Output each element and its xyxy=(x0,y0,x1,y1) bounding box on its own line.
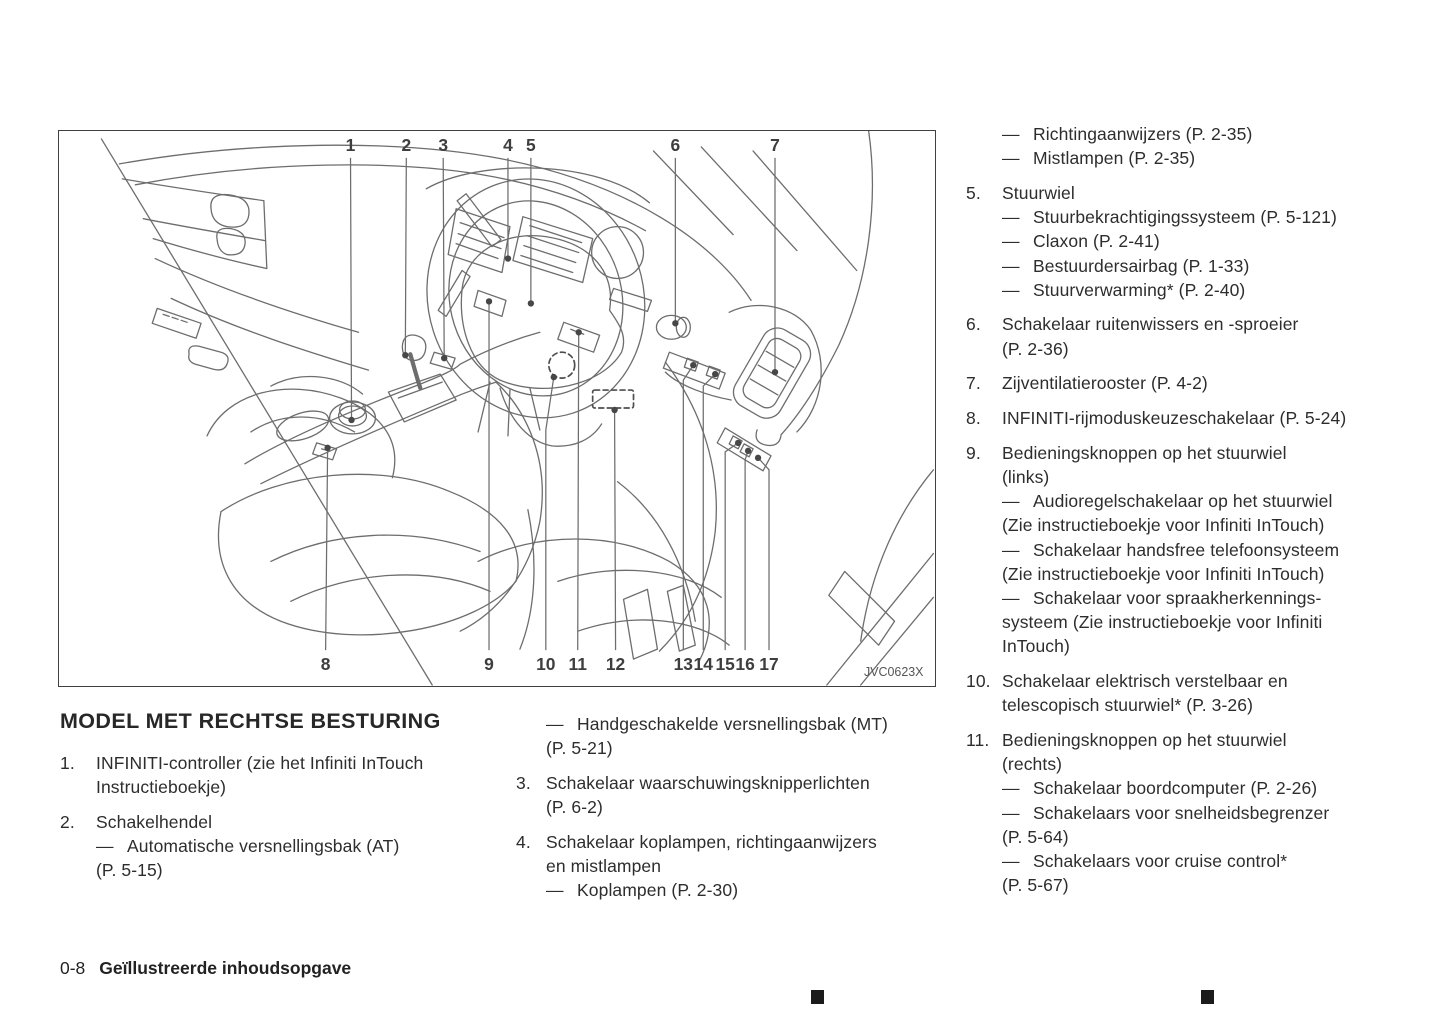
column-right: —Richtingaanwijzers (P. 2-35)—Mistlampen… xyxy=(966,122,1431,908)
dash-marker: — xyxy=(1002,254,1033,278)
diagram-callouts: 1234567891011121314151617 xyxy=(321,135,780,674)
callout-dot-9 xyxy=(486,298,492,304)
item-number: 10. xyxy=(966,669,991,693)
callout-number-15: 15 xyxy=(715,654,735,674)
item-line: Bedieningsknoppen op het stuurwiel xyxy=(1002,441,1431,465)
callout-leader-11 xyxy=(578,332,579,650)
sub-item-line: —Automatische versnellingsbak (AT) xyxy=(96,834,505,858)
sub-item-line: —Claxon (P. 2-41) xyxy=(1002,229,1431,253)
callout-leader-14 xyxy=(703,374,715,650)
callout-number-14: 14 xyxy=(694,654,714,674)
list-item: 4.Schakelaar koplampen, richtingaanwijze… xyxy=(516,830,961,903)
sub-item-line: —Schakelaars voor cruise control* xyxy=(1002,849,1431,873)
figure-code: JVC0623X xyxy=(864,665,924,679)
callout-leader-12 xyxy=(615,410,616,650)
footer-section-title: Geïllustreerde inhoudsopgave xyxy=(99,958,351,978)
item-line: Schakelaar ruitenwissers en -sproeier xyxy=(1002,312,1431,336)
callout-leader-3 xyxy=(443,158,444,358)
callout-number-12: 12 xyxy=(606,654,625,674)
list-item: —Handgeschakelde versnellingsbak (MT)(P.… xyxy=(516,712,961,760)
callout-number-17: 17 xyxy=(759,654,778,674)
list-item: 9.Bedieningsknoppen op het stuurwiel(lin… xyxy=(966,441,1431,659)
callout-leader-16 xyxy=(745,451,748,650)
item-line: InTouch) xyxy=(1002,634,1431,658)
item-number: 2. xyxy=(60,810,75,834)
item-number: 1. xyxy=(60,751,75,775)
list-item: 11.Bedieningsknoppen op het stuurwiel(re… xyxy=(966,728,1431,897)
dash-marker: — xyxy=(1002,122,1033,146)
callout-number-6: 6 xyxy=(671,135,681,155)
callout-dot-2 xyxy=(402,352,408,358)
callout-number-5: 5 xyxy=(526,135,536,155)
callout-number-1: 1 xyxy=(346,135,356,155)
item-line: (P. 2-36) xyxy=(1002,337,1431,361)
car-interior-line-art xyxy=(101,131,933,685)
dash-marker: — xyxy=(546,878,577,902)
list-item: 3.Schakelaar waarschuwingsknipperlichten… xyxy=(516,771,961,819)
list-item: 1.INFINITI-controller (zie het Infiniti … xyxy=(60,751,505,799)
callout-dot-5 xyxy=(528,300,534,306)
item-number: 6. xyxy=(966,312,981,336)
callout-dot-10 xyxy=(551,374,557,380)
item-number: 4. xyxy=(516,830,531,854)
item-number: 11. xyxy=(966,728,989,752)
item-line: (P. 5-67) xyxy=(1002,873,1431,897)
item-line: (P. 5-21) xyxy=(546,736,961,760)
callout-number-3: 3 xyxy=(438,135,448,155)
list-item: 10.Schakelaar elektrisch verstelbaar ent… xyxy=(966,669,1431,717)
item-number: 8. xyxy=(966,406,981,430)
sub-item-line: —Schakelaars voor snelheidsbegrenzer xyxy=(1002,801,1431,825)
item-line: Schakelaar waarschuwingsknipperlichten xyxy=(546,771,961,795)
sub-item-line: —Schakelaar handsfree telefoonsysteem xyxy=(1002,538,1431,562)
item-line: Instructieboekje) xyxy=(96,775,505,799)
dash-marker: — xyxy=(1002,801,1033,825)
item-line: (P. 6-2) xyxy=(546,795,961,819)
callout-number-8: 8 xyxy=(321,654,331,674)
callout-number-11: 11 xyxy=(568,654,587,674)
item-line: (links) xyxy=(1002,465,1431,489)
dash-marker: — xyxy=(1002,538,1033,562)
sub-item-line: —Koplampen (P. 2-30) xyxy=(546,878,961,902)
page-number: 0-8 xyxy=(60,958,85,978)
item-number: 5. xyxy=(966,181,981,205)
dash-marker: — xyxy=(1002,229,1033,253)
dash-marker: — xyxy=(1002,776,1033,800)
item-line: Schakelhendel xyxy=(96,810,505,834)
print-marker-left xyxy=(811,990,824,1004)
page-footer: 0-8Geïllustreerde inhoudsopgave xyxy=(60,958,351,979)
sub-item-line: —Stuurbekrachtigingssysteem (P. 5-121) xyxy=(1002,205,1431,229)
callout-number-4: 4 xyxy=(503,135,513,155)
callout-leader-17 xyxy=(758,458,769,650)
sub-item-line: —Schakelaar boordcomputer (P. 2-26) xyxy=(1002,776,1431,800)
manual-page: 1234567891011121314151617 JVC0623X MODEL… xyxy=(0,0,1445,1019)
callout-dot-8 xyxy=(324,445,330,451)
callout-dot-1 xyxy=(348,417,354,423)
callout-leader-8 xyxy=(326,448,328,650)
callout-number-9: 9 xyxy=(484,654,494,674)
dash-marker: — xyxy=(1002,586,1033,610)
sub-item-line: —Richtingaanwijzers (P. 2-35) xyxy=(1002,122,1431,146)
callout-number-13: 13 xyxy=(674,654,694,674)
sub-item-line: —Handgeschakelde versnellingsbak (MT) xyxy=(546,712,961,736)
item-line: systeem (Zie instructieboekje voor Infin… xyxy=(1002,610,1431,634)
car-interior-diagram: 1234567891011121314151617 JVC0623X xyxy=(59,131,935,686)
callout-dot-15 xyxy=(735,440,741,446)
sub-item-line: —Stuurverwarming* (P. 2-40) xyxy=(1002,278,1431,302)
callout-number-16: 16 xyxy=(735,654,755,674)
item-number: 3. xyxy=(516,771,531,795)
item-line: Bedieningsknoppen op het stuurwiel xyxy=(1002,728,1431,752)
item-line: (P. 5-15) xyxy=(96,858,505,882)
item-line: (Zie instructieboekje voor Infiniti InTo… xyxy=(1002,562,1431,586)
callout-leader-1 xyxy=(351,158,352,420)
print-marker-right xyxy=(1201,990,1214,1004)
sub-item-line: —Audioregelschakelaar op het stuurwiel xyxy=(1002,489,1431,513)
sub-item-line: —Schakelaar voor spraakherkennings- xyxy=(1002,586,1431,610)
callout-dot-14 xyxy=(712,371,718,377)
item-line: INFINITI-controller (zie het Infiniti In… xyxy=(96,751,505,775)
callout-number-2: 2 xyxy=(401,135,411,155)
dash-marker: — xyxy=(1002,489,1033,513)
column-left: 1.INFINITI-controller (zie het Infiniti … xyxy=(60,751,505,893)
column-middle: —Handgeschakelde versnellingsbak (MT)(P.… xyxy=(516,712,961,913)
item-line: Schakelaar koplampen, richtingaanwijzers xyxy=(546,830,961,854)
item-line: (Zie instructieboekje voor Infiniti InTo… xyxy=(1002,513,1431,537)
list-item: 8.INFINITI-rijmoduskeuzeschakelaar (P. 5… xyxy=(966,406,1431,430)
item-line: Schakelaar elektrisch verstelbaar en xyxy=(1002,669,1431,693)
callout-dot-17 xyxy=(755,455,761,461)
callout-dot-11 xyxy=(576,329,582,335)
callout-dot-16 xyxy=(745,448,751,454)
list-item: —Richtingaanwijzers (P. 2-35)—Mistlampen… xyxy=(966,122,1431,170)
callout-leader-15 xyxy=(725,443,738,650)
item-number: 9. xyxy=(966,441,981,465)
sub-item-line: —Mistlampen (P. 2-35) xyxy=(1002,146,1431,170)
item-line: INFINITI-rijmoduskeuzeschakelaar (P. 5-2… xyxy=(1002,406,1431,430)
item-line: en mistlampen xyxy=(546,854,961,878)
callout-dot-12 xyxy=(611,407,617,413)
item-line: telescopisch stuurwiel* (P. 3-26) xyxy=(1002,693,1431,717)
section-heading: MODEL MET RECHTSE BESTURING xyxy=(60,709,441,734)
list-item: 7.Zijventilatierooster (P. 4-2) xyxy=(966,371,1431,395)
item-line: (rechts) xyxy=(1002,752,1431,776)
callout-number-7: 7 xyxy=(770,135,780,155)
dash-marker: — xyxy=(1002,146,1033,170)
item-line: Zijventilatierooster (P. 4-2) xyxy=(1002,371,1431,395)
callout-dot-4 xyxy=(505,255,511,261)
callout-dot-6 xyxy=(672,320,678,326)
list-item: 2.Schakelhendel—Automatische versnelling… xyxy=(60,810,505,883)
callout-dot-7 xyxy=(772,369,778,375)
dash-marker: — xyxy=(1002,849,1033,873)
dash-marker: — xyxy=(1002,205,1033,229)
callout-number-10: 10 xyxy=(536,654,555,674)
interior-diagram-figure: 1234567891011121314151617 JVC0623X xyxy=(58,130,936,687)
callout-leader-2 xyxy=(405,158,406,355)
dash-marker: — xyxy=(546,712,577,736)
item-number: 7. xyxy=(966,371,981,395)
dash-marker: — xyxy=(96,834,127,858)
list-item: 5.Stuurwiel—Stuurbekrachtigingssysteem (… xyxy=(966,181,1431,302)
dash-marker: — xyxy=(1002,278,1033,302)
sub-item-line: —Bestuurdersairbag (P. 1-33) xyxy=(1002,254,1431,278)
item-line: (P. 5-64) xyxy=(1002,825,1431,849)
item-line: Stuurwiel xyxy=(1002,181,1431,205)
callout-dot-3 xyxy=(441,355,447,361)
list-item: 6.Schakelaar ruitenwissers en -sproeier(… xyxy=(966,312,1431,360)
callout-dot-13 xyxy=(690,362,696,368)
